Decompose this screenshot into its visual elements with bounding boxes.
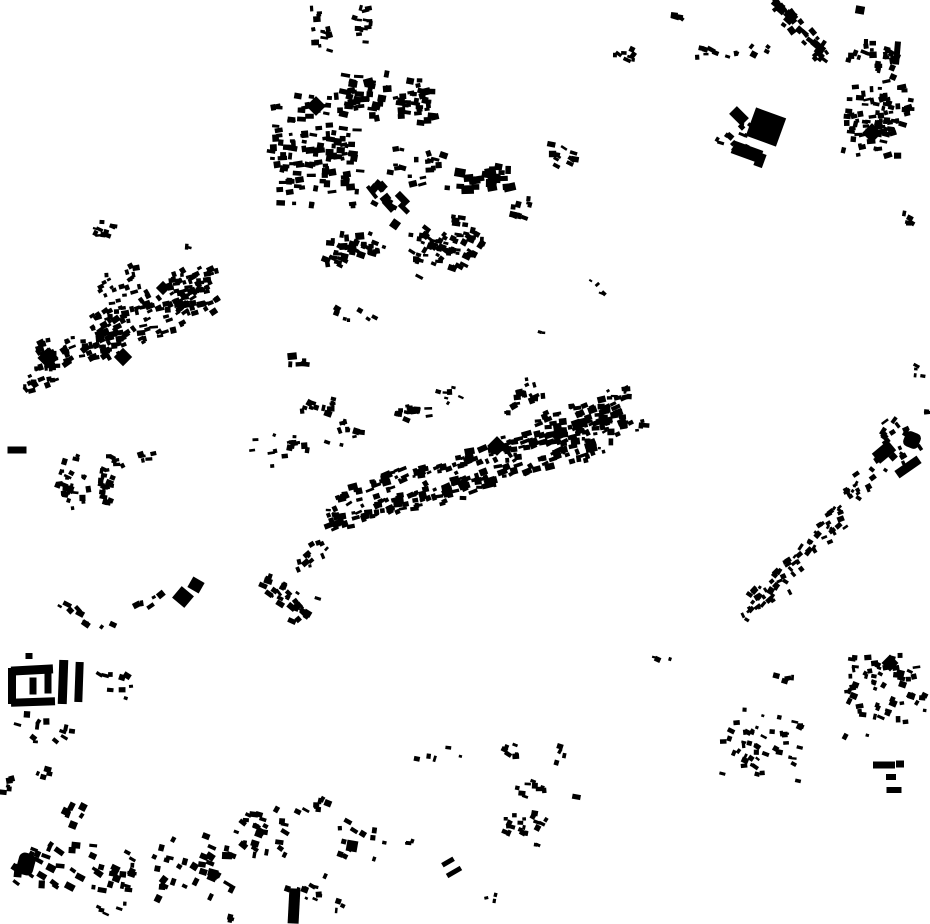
building	[196, 300, 206, 308]
building	[505, 458, 509, 463]
building	[355, 232, 365, 240]
building	[333, 138, 342, 146]
special-building	[487, 436, 507, 456]
building	[182, 280, 187, 285]
building	[207, 844, 216, 851]
building	[40, 774, 47, 781]
building	[553, 759, 559, 765]
special-building	[156, 281, 170, 295]
special-building	[346, 840, 359, 853]
building	[43, 766, 51, 773]
building	[888, 64, 896, 72]
building	[502, 183, 513, 190]
building	[695, 55, 700, 60]
building	[81, 501, 85, 504]
building	[295, 176, 304, 183]
building	[425, 159, 431, 164]
building	[356, 32, 362, 36]
building	[359, 430, 365, 436]
building	[277, 845, 285, 852]
building	[568, 458, 575, 464]
building	[703, 53, 708, 56]
building	[719, 771, 726, 775]
building	[760, 734, 767, 739]
building	[330, 397, 336, 402]
building	[46, 844, 53, 852]
building	[443, 391, 450, 394]
building	[317, 11, 322, 14]
building	[913, 665, 921, 669]
special-building	[30, 678, 37, 695]
building	[877, 714, 885, 720]
building	[340, 903, 346, 909]
building	[444, 396, 448, 399]
building	[413, 756, 420, 762]
building	[27, 374, 32, 379]
building	[426, 753, 431, 759]
building	[287, 116, 295, 123]
building	[576, 410, 583, 417]
building	[308, 883, 316, 890]
building	[598, 447, 601, 450]
building	[339, 231, 344, 238]
building	[170, 836, 176, 843]
building	[301, 442, 308, 449]
building	[780, 573, 787, 580]
building	[326, 48, 333, 53]
building	[760, 601, 767, 608]
building	[322, 168, 329, 175]
building	[726, 735, 732, 741]
building	[56, 863, 65, 868]
building	[65, 476, 69, 480]
building	[754, 750, 759, 755]
building	[790, 761, 797, 767]
building	[513, 394, 521, 400]
building	[434, 494, 443, 499]
building	[880, 682, 887, 689]
building	[38, 880, 45, 888]
building	[743, 730, 747, 735]
building	[512, 402, 520, 406]
building	[79, 354, 85, 358]
building	[795, 778, 801, 783]
building	[109, 475, 116, 481]
building	[317, 142, 325, 149]
building	[355, 26, 361, 31]
building	[854, 133, 862, 136]
building	[755, 725, 759, 729]
building	[521, 830, 528, 834]
building	[116, 906, 123, 911]
building	[398, 114, 405, 119]
building	[897, 445, 902, 450]
building	[387, 169, 394, 175]
building	[443, 241, 449, 245]
building	[849, 684, 856, 691]
building	[339, 126, 348, 131]
building	[12, 879, 20, 886]
building	[870, 86, 874, 92]
building	[782, 578, 789, 584]
building	[543, 817, 549, 823]
building	[439, 501, 446, 506]
building	[896, 716, 901, 722]
building	[541, 455, 547, 461]
building	[406, 77, 415, 85]
building	[795, 551, 803, 559]
special-building	[288, 888, 301, 924]
building	[542, 331, 546, 334]
building	[151, 595, 156, 600]
building	[324, 180, 330, 187]
building	[68, 820, 78, 830]
building	[914, 373, 917, 377]
building	[328, 153, 337, 160]
building	[64, 881, 76, 892]
building	[423, 466, 428, 472]
building	[60, 469, 64, 472]
building	[382, 841, 387, 845]
building	[392, 146, 399, 152]
building	[736, 748, 742, 754]
building	[272, 433, 276, 437]
building	[523, 434, 527, 438]
building	[439, 151, 449, 160]
building	[171, 271, 177, 278]
building	[314, 803, 320, 809]
building	[207, 893, 214, 901]
building	[309, 94, 315, 99]
building	[273, 805, 280, 813]
building	[270, 157, 275, 160]
building	[893, 672, 901, 678]
building	[289, 133, 293, 136]
building	[372, 827, 377, 833]
building	[758, 585, 762, 589]
building	[146, 602, 155, 610]
building	[868, 114, 876, 118]
building	[432, 487, 437, 492]
building	[777, 715, 782, 720]
building	[435, 389, 441, 395]
building	[595, 282, 600, 287]
building	[897, 86, 904, 90]
building	[419, 176, 426, 180]
building	[437, 469, 442, 474]
building	[601, 450, 605, 454]
building	[275, 163, 280, 166]
building	[311, 27, 316, 32]
building	[508, 824, 516, 830]
building	[399, 507, 407, 511]
building	[369, 112, 376, 119]
building	[345, 501, 352, 507]
building	[71, 506, 75, 510]
building	[69, 729, 75, 734]
building	[460, 462, 466, 467]
building	[123, 902, 127, 906]
building	[456, 252, 460, 255]
building	[294, 93, 302, 100]
building	[323, 111, 330, 115]
building	[414, 157, 419, 162]
building	[445, 746, 451, 750]
building	[857, 111, 864, 118]
building	[154, 865, 161, 872]
building	[575, 431, 581, 436]
building	[614, 431, 621, 437]
building	[476, 486, 482, 489]
building	[600, 415, 608, 419]
building	[324, 440, 331, 445]
building	[189, 300, 196, 307]
building	[460, 496, 467, 500]
building	[96, 671, 104, 678]
building	[871, 674, 877, 679]
building	[435, 260, 443, 264]
building	[371, 314, 378, 320]
building	[444, 185, 450, 190]
building	[368, 21, 372, 26]
building	[189, 862, 199, 872]
building	[415, 83, 421, 88]
building	[223, 880, 233, 888]
building	[452, 221, 461, 227]
building	[129, 306, 135, 313]
building	[582, 430, 587, 434]
building	[45, 338, 50, 343]
building	[296, 559, 301, 565]
building	[63, 724, 68, 731]
building	[613, 53, 617, 58]
building	[28, 388, 36, 394]
building	[599, 424, 605, 431]
building	[102, 911, 109, 916]
building	[492, 456, 498, 463]
building	[267, 451, 275, 455]
building	[339, 110, 349, 118]
building	[396, 492, 404, 498]
building	[393, 163, 398, 166]
building	[286, 178, 292, 185]
building	[199, 868, 208, 876]
building	[54, 846, 65, 856]
building	[454, 470, 459, 475]
building	[512, 743, 518, 748]
building	[80, 339, 86, 343]
building	[478, 175, 484, 181]
building	[293, 435, 297, 438]
building	[14, 722, 22, 727]
building	[130, 863, 134, 868]
building	[784, 676, 791, 681]
building	[856, 55, 861, 61]
building	[914, 700, 920, 706]
building	[351, 515, 360, 521]
building	[331, 130, 337, 136]
building	[24, 711, 31, 718]
building	[81, 619, 91, 628]
building	[744, 617, 750, 622]
building	[394, 166, 401, 171]
building	[850, 489, 854, 493]
building	[118, 284, 125, 290]
building	[570, 437, 580, 445]
building	[415, 407, 420, 411]
building	[827, 539, 834, 545]
building	[862, 103, 869, 106]
building	[526, 201, 532, 205]
building	[207, 300, 214, 306]
building	[68, 344, 76, 349]
map-canvas	[0, 0, 930, 924]
building	[621, 51, 627, 55]
building	[196, 287, 204, 293]
building	[159, 884, 166, 890]
building	[559, 418, 567, 425]
building	[532, 382, 537, 388]
building	[746, 740, 752, 746]
building	[326, 136, 335, 142]
building	[71, 336, 75, 339]
building	[397, 97, 405, 104]
building	[214, 268, 219, 274]
building	[592, 426, 600, 431]
building	[398, 408, 403, 412]
building	[81, 475, 85, 479]
building	[170, 326, 177, 334]
building	[446, 401, 450, 406]
building	[902, 210, 907, 216]
building	[57, 604, 62, 608]
building	[41, 853, 51, 860]
building	[107, 688, 114, 693]
building	[281, 453, 288, 458]
building	[365, 316, 371, 321]
building	[906, 669, 913, 674]
building	[627, 394, 632, 400]
building	[512, 813, 517, 817]
building	[526, 196, 531, 201]
building	[414, 111, 422, 116]
building	[35, 723, 39, 730]
building	[297, 116, 306, 121]
building	[79, 495, 85, 501]
building	[343, 317, 347, 321]
building	[534, 843, 538, 847]
building	[37, 376, 45, 382]
building	[791, 720, 798, 724]
building	[518, 790, 526, 796]
special-building	[306, 96, 326, 116]
building	[156, 590, 166, 600]
building	[603, 407, 610, 414]
building	[451, 214, 456, 219]
building	[397, 107, 405, 115]
building	[877, 671, 883, 676]
building	[23, 384, 26, 389]
special-building	[894, 456, 921, 479]
building	[513, 453, 517, 457]
building	[275, 839, 284, 845]
building	[45, 863, 56, 874]
building	[344, 234, 349, 241]
building	[455, 455, 462, 461]
building	[137, 330, 146, 336]
building	[413, 468, 424, 476]
building	[435, 253, 440, 258]
building	[352, 128, 361, 131]
building	[888, 104, 895, 110]
building	[317, 894, 322, 898]
building	[314, 596, 321, 601]
building	[305, 114, 314, 119]
building	[308, 541, 315, 548]
building	[459, 755, 463, 758]
building	[432, 755, 436, 762]
building	[300, 408, 305, 414]
building	[36, 871, 47, 881]
special-building	[11, 697, 55, 707]
special-building	[74, 662, 83, 702]
building	[343, 178, 350, 183]
building	[180, 273, 184, 277]
building	[493, 464, 502, 469]
building	[886, 56, 890, 60]
building	[174, 301, 182, 308]
building	[120, 463, 126, 469]
building	[544, 425, 551, 430]
building	[857, 709, 862, 714]
building	[493, 892, 497, 897]
building	[278, 156, 288, 161]
building	[790, 571, 796, 577]
building	[580, 402, 588, 409]
building	[149, 326, 158, 329]
building	[563, 452, 566, 455]
building	[452, 462, 458, 468]
building	[106, 277, 111, 281]
building	[313, 185, 319, 192]
building	[155, 294, 162, 301]
building	[0, 789, 7, 795]
building	[389, 485, 396, 490]
building	[347, 428, 351, 432]
building	[124, 849, 131, 855]
building	[320, 553, 325, 560]
building	[870, 97, 875, 104]
building	[852, 84, 859, 89]
building	[570, 150, 578, 156]
building	[307, 174, 316, 177]
building	[292, 202, 296, 206]
building	[380, 508, 385, 513]
special-building	[893, 41, 901, 64]
building	[290, 139, 295, 142]
building	[883, 468, 888, 473]
building	[192, 877, 200, 886]
building	[141, 458, 145, 463]
building	[108, 672, 113, 677]
building	[98, 864, 105, 871]
building	[593, 432, 598, 436]
building	[352, 435, 357, 439]
building	[864, 655, 871, 661]
building	[308, 564, 312, 568]
building	[552, 163, 560, 170]
building	[104, 273, 108, 278]
